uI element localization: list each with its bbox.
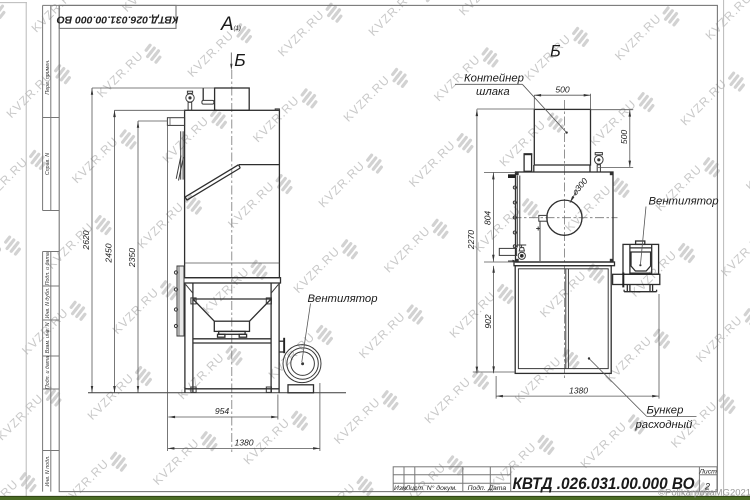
svg-text:Вентилятор: Вентилятор xyxy=(308,293,378,305)
svg-text:1380: 1380 xyxy=(234,437,253,447)
svg-text:Лист: Лист xyxy=(405,485,424,492)
svg-text:©PolikarpovaMG2021: ©PolikarpovaMG2021 xyxy=(658,488,750,499)
svg-text:Перв. примен.: Перв. примен. xyxy=(45,59,51,94)
svg-text:804: 804 xyxy=(483,211,493,226)
svg-text:Инв. N подл.: Инв. N подл. xyxy=(45,456,51,487)
svg-text:500: 500 xyxy=(619,130,629,145)
svg-text:Инв. N дубл.: Инв. N дубл. xyxy=(45,288,51,319)
svg-text:Взам. инв. N: Взам. инв. N xyxy=(45,322,51,353)
svg-text:Дата: Дата xyxy=(487,485,506,492)
svg-text:1380: 1380 xyxy=(569,385,588,395)
svg-text:расходный: расходный xyxy=(635,419,694,431)
svg-text:шлака: шлака xyxy=(476,86,510,98)
svg-text:2350: 2350 xyxy=(127,248,137,268)
svg-text:902: 902 xyxy=(483,314,493,329)
svg-text:Вентилятор: Вентилятор xyxy=(649,196,719,208)
svg-text:Б: Б xyxy=(550,42,561,60)
svg-text:Контейнер: Контейнер xyxy=(464,73,524,85)
svg-text:2450: 2450 xyxy=(104,243,114,263)
svg-text:Подп. и дата: Подп. и дата xyxy=(45,356,51,389)
svg-text:КВТД.026.031.00.000 ВО: КВТД.026.031.00.000 ВО xyxy=(57,13,179,25)
svg-text:Бункер: Бункер xyxy=(647,405,684,417)
svg-text:N° докум.: N° докум. xyxy=(427,484,457,492)
svg-text:Подп.: Подп. xyxy=(468,484,486,492)
svg-text:954: 954 xyxy=(215,406,230,416)
svg-text:Лист: Лист xyxy=(698,469,717,476)
svg-text:500: 500 xyxy=(555,85,570,95)
svg-text:2620: 2620 xyxy=(81,230,91,250)
svg-text:Подп. и дата: Подп. и дата xyxy=(45,252,51,285)
svg-text:(1): (1) xyxy=(234,26,241,32)
svg-text:2270: 2270 xyxy=(466,230,476,250)
svg-text:А: А xyxy=(220,14,234,35)
svg-text:Б: Б xyxy=(234,50,245,70)
svg-text:Справ. N: Справ. N xyxy=(45,153,51,175)
